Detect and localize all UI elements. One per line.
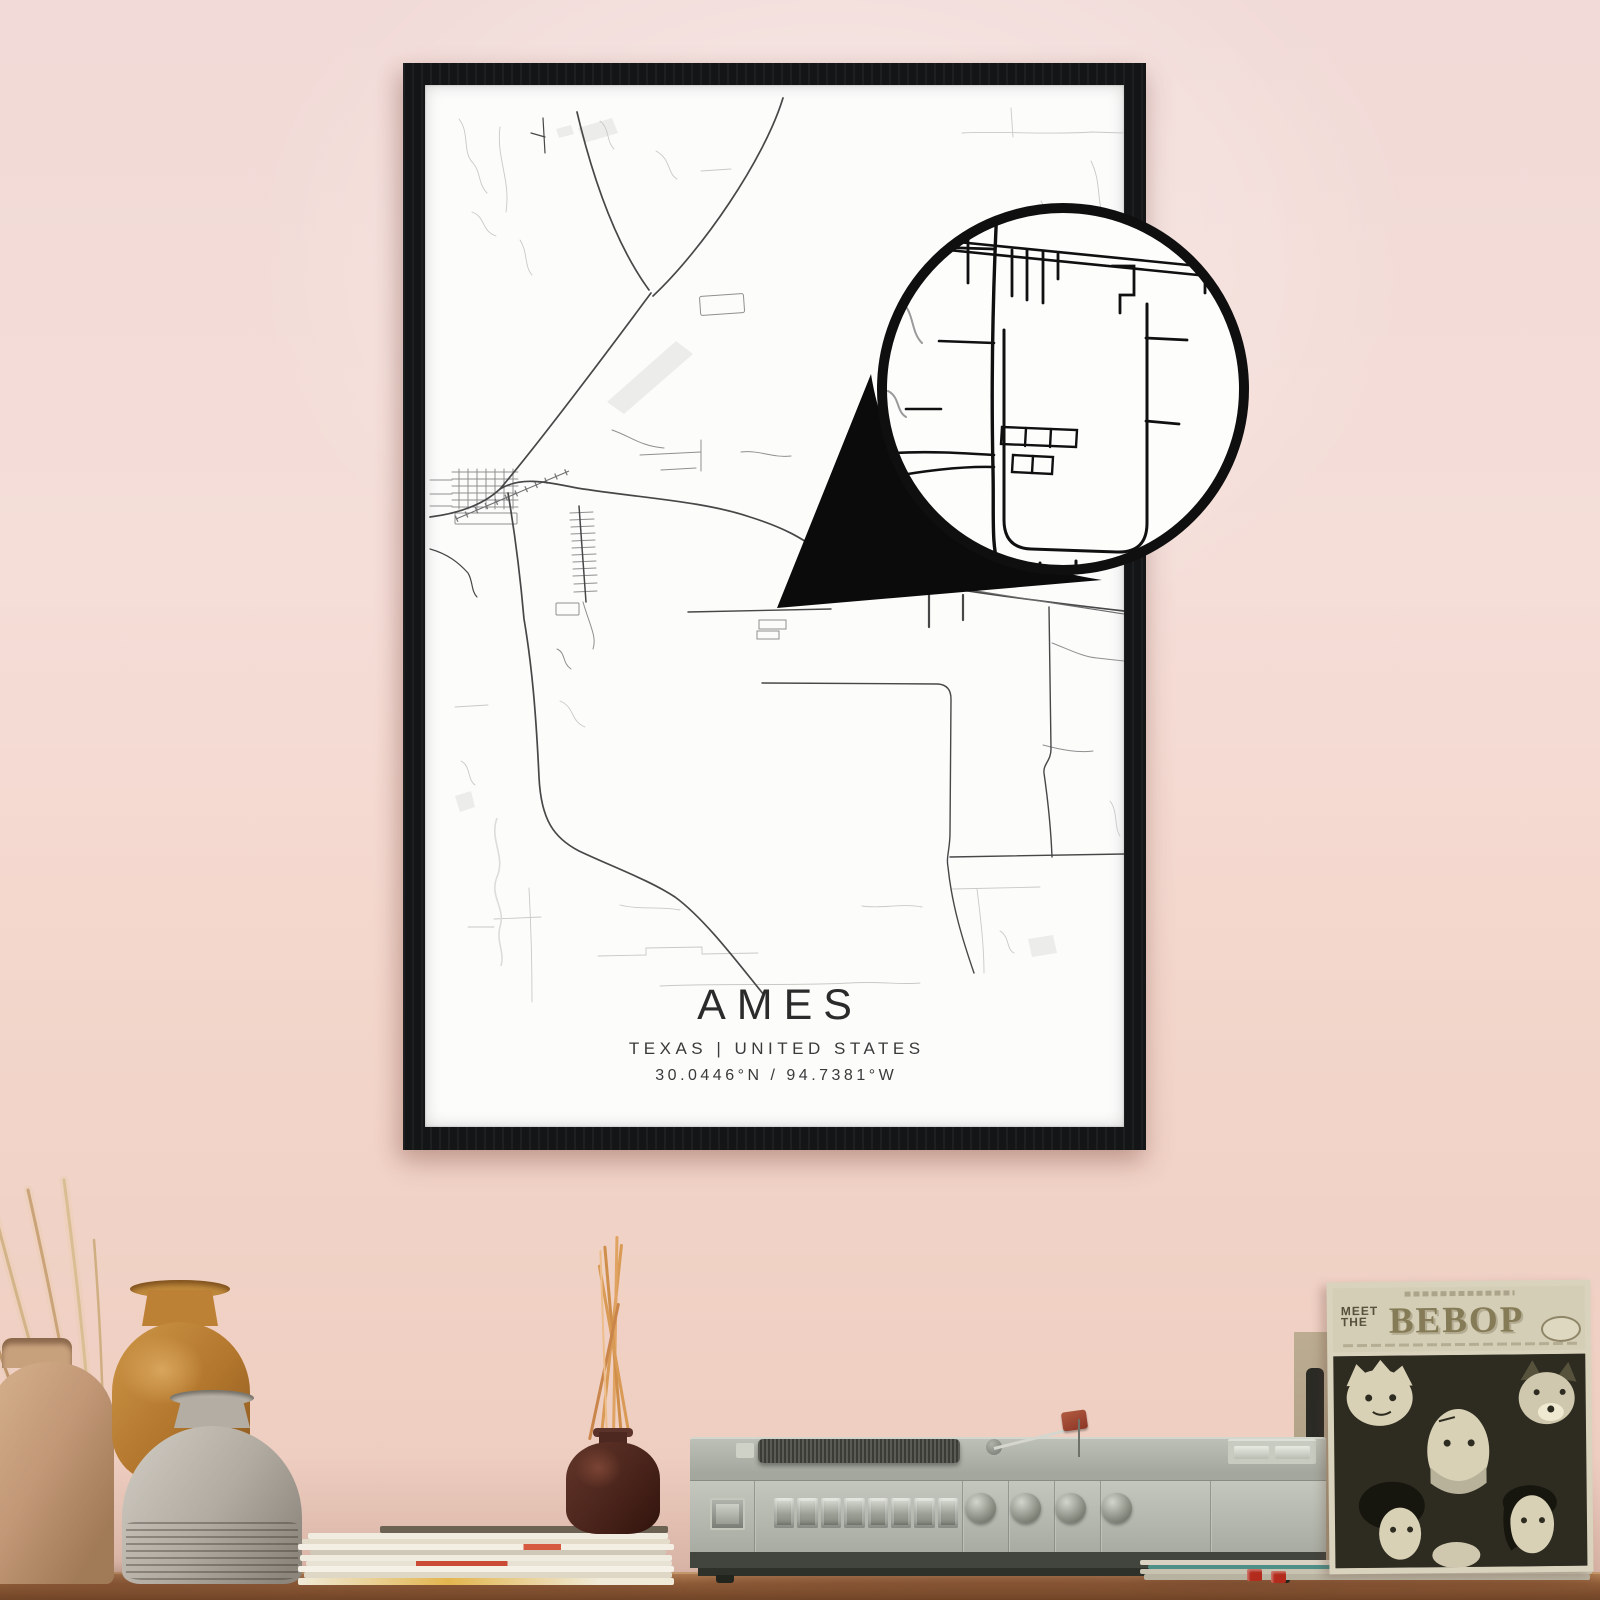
poster-subtitle: TEXAS | UNITED STATES <box>430 1039 1125 1059</box>
album-meet-the: MEET THE <box>1341 1306 1379 1328</box>
rocker-switch <box>1275 1446 1310 1459</box>
preset-buttons <box>774 1498 958 1528</box>
poster-caption: AMES TEXAS | UNITED STATES 30.0446°N / 9… <box>425 981 1124 1085</box>
album-cover: MEET THE BEBOP <box>1326 1280 1593 1575</box>
lid-hinge <box>736 1443 754 1458</box>
preset-button <box>797 1498 817 1528</box>
antenna <box>1078 1419 1080 1457</box>
panel-divider <box>1054 1481 1056 1553</box>
panel-divider <box>1100 1481 1102 1553</box>
album-fine-print <box>1405 1290 1515 1296</box>
player-front-panel <box>690 1480 1326 1553</box>
panel-divider <box>962 1481 964 1553</box>
preset-button <box>891 1498 911 1528</box>
preset-button <box>868 1498 888 1528</box>
turntable-platter <box>758 1439 960 1463</box>
vase-tan <box>0 1338 114 1584</box>
preset-button <box>774 1498 794 1528</box>
poster-coordinates: 30.0446°N / 94.7381°W <box>429 1067 1125 1085</box>
album-title: BEBOP <box>1389 1298 1525 1342</box>
album-faces <box>1333 1354 1587 1569</box>
vase-gray-neck <box>174 1398 250 1428</box>
magazine-stack <box>298 1526 674 1585</box>
preset-button <box>938 1498 958 1528</box>
river <box>495 818 502 966</box>
vase-gray-ribs <box>126 1522 298 1580</box>
poster-title: AMES <box>436 981 1124 1030</box>
reed-diffuser-bottle <box>566 1428 660 1534</box>
album-header: MEET THE BEBOP <box>1333 1286 1586 1353</box>
rocker-switch <box>1234 1446 1269 1459</box>
deck-switch-panel <box>1228 1439 1316 1464</box>
red-die <box>1271 1571 1286 1583</box>
album-artwork <box>1333 1354 1587 1569</box>
panel-divider <box>1008 1481 1010 1553</box>
tuning-knob <box>1102 1493 1132 1523</box>
volume-knob <box>966 1493 996 1523</box>
tonearm-cartridge <box>1061 1409 1088 1431</box>
tone-knob <box>1011 1493 1041 1523</box>
preset-button <box>914 1498 934 1528</box>
magnifier-callout <box>740 168 1270 620</box>
power-button <box>710 1498 745 1530</box>
diffuser-body <box>566 1442 660 1534</box>
preset-button <box>821 1498 841 1528</box>
vase-amber-neck <box>142 1290 218 1326</box>
vase-gray <box>122 1390 302 1584</box>
player-foot <box>716 1575 734 1583</box>
balance-knob <box>1056 1493 1086 1523</box>
album-meet-line2: THE <box>1341 1317 1378 1328</box>
scene: AMES TEXAS | UNITED STATES 30.0446°N / 9… <box>0 0 1600 1600</box>
record <box>1144 1574 1590 1580</box>
preset-button <box>844 1498 864 1528</box>
red-die <box>1247 1569 1262 1581</box>
panel-divider <box>754 1481 756 1553</box>
panel-divider <box>1210 1481 1212 1553</box>
magazine <box>298 1578 674 1585</box>
album-subtitle-line <box>1343 1342 1577 1347</box>
vase-tan-body <box>0 1362 114 1584</box>
vase-gray-body <box>122 1426 302 1584</box>
album-label-badge <box>1541 1316 1581 1342</box>
